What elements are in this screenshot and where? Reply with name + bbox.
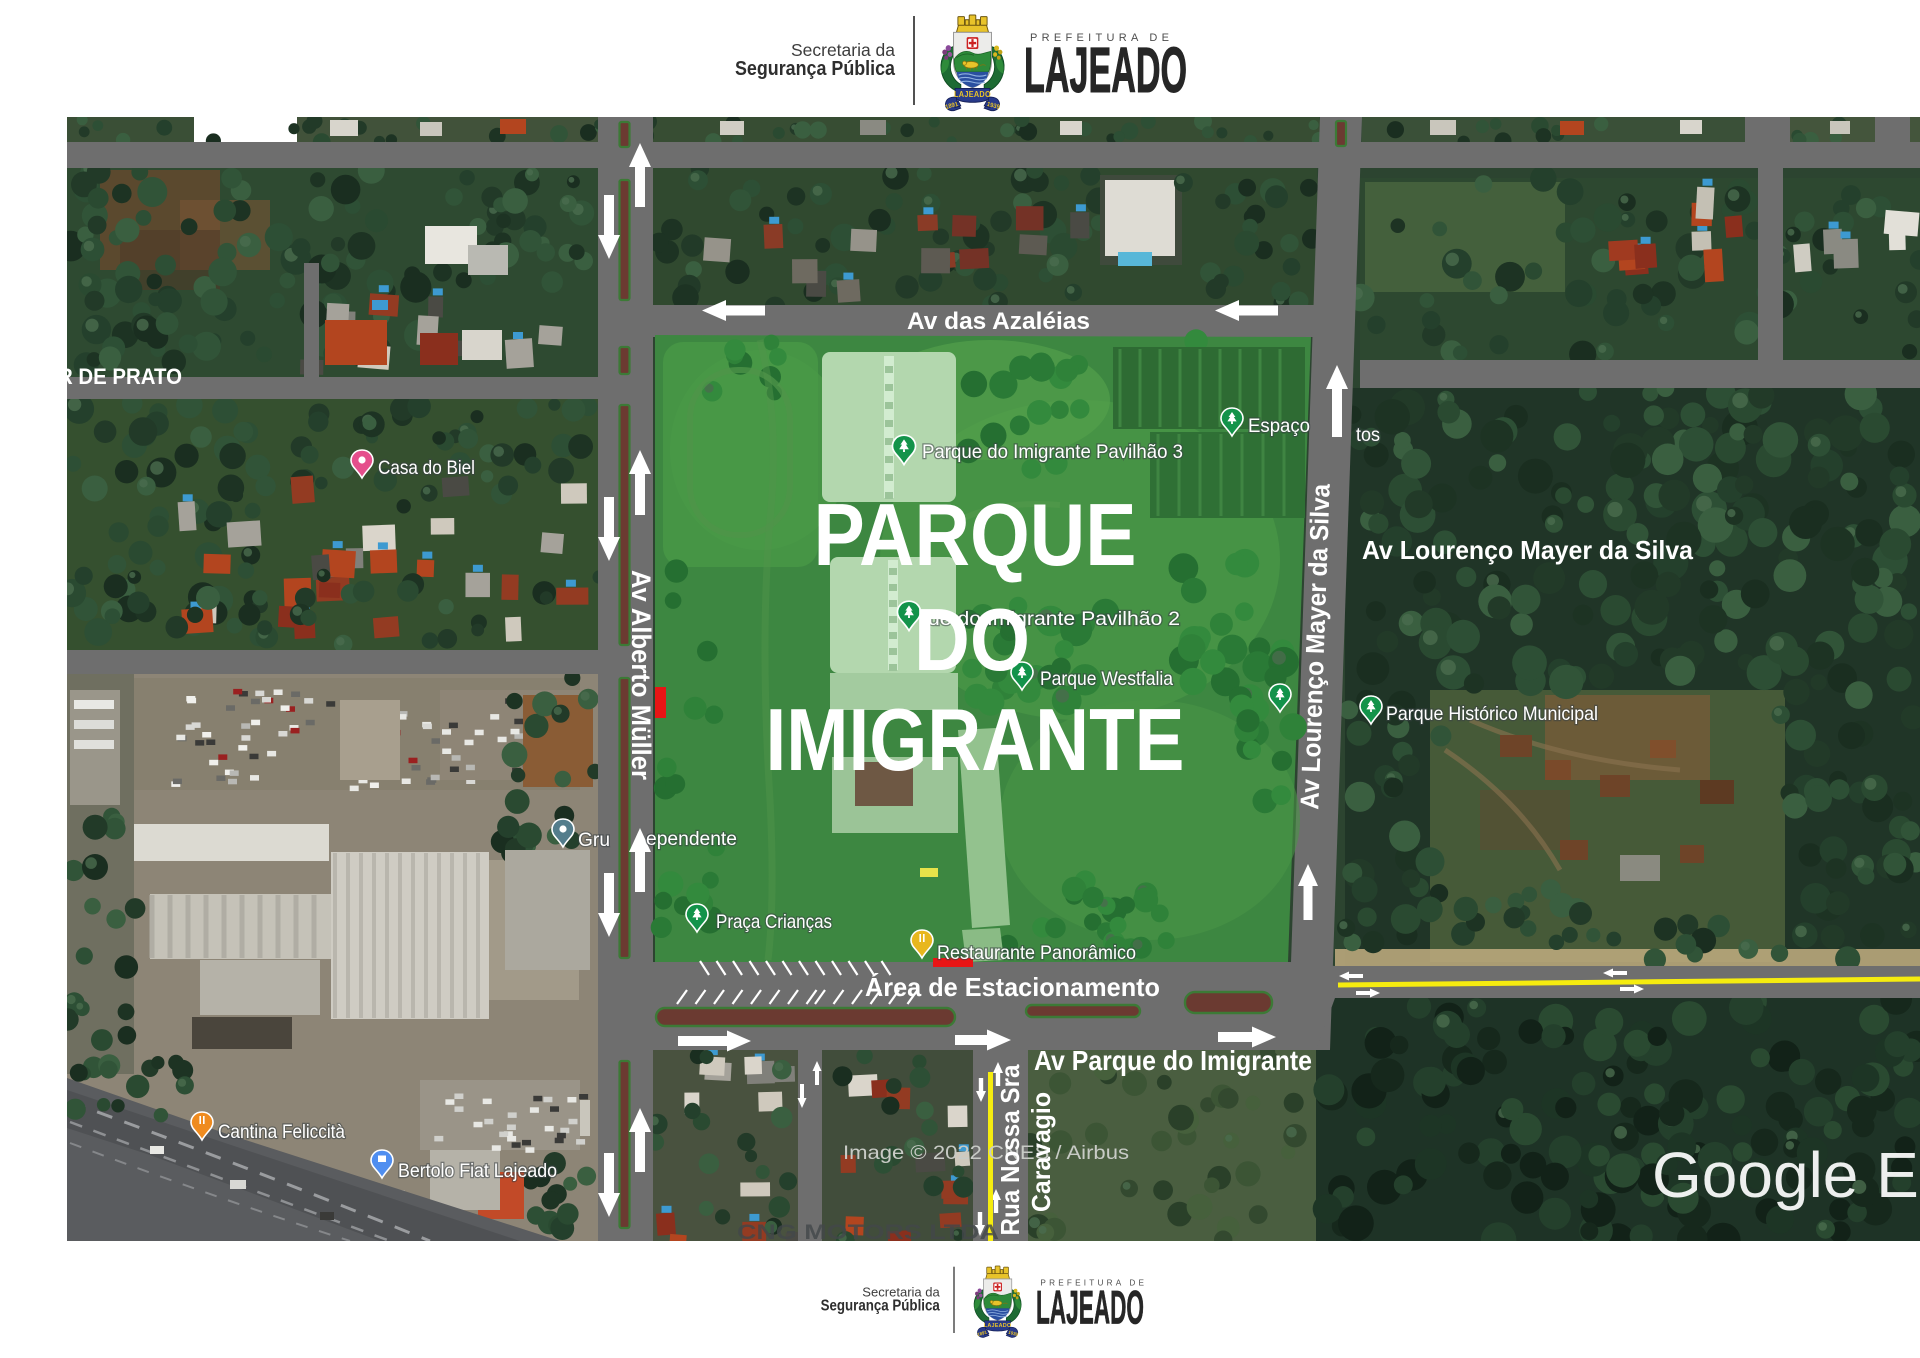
svg-text:PARQUE: PARQUE: [814, 485, 1137, 584]
svg-text:DO: DO: [914, 590, 1030, 689]
svg-text:IMIGRANTE: IMIGRANTE: [766, 690, 1185, 789]
svg-text:Parque Histórico Municipal: Parque Histórico Municipal: [1386, 703, 1598, 725]
svg-text:Rua Nossa Sra: Rua Nossa Sra: [995, 1064, 1025, 1235]
svg-text:CNG MOTORS LTDA: CNG MOTORS LTDA: [737, 1221, 999, 1244]
svg-text:Gru: Gru: [578, 829, 610, 851]
svg-text:Bertolo Fiat Lajeado: Bertolo Fiat Lajeado: [398, 1160, 557, 1182]
svg-text:Av Lourenço Mayer da Silva: Av Lourenço Mayer da Silva: [1362, 535, 1694, 565]
svg-text:Área de Estacionamento: Área de Estacionamento: [865, 972, 1160, 1002]
svg-text:Av Alberto Müller: Av Alberto Müller: [626, 570, 656, 780]
svg-text:Segurança Pública: Segurança Pública: [735, 57, 896, 80]
svg-text:LAJEADO: LAJEADO: [1036, 1281, 1144, 1334]
svg-text:Parque do Imigrante Pavilhão 3: Parque do Imigrante Pavilhão 3: [922, 441, 1183, 463]
svg-text:Restaurante Panorâmico: Restaurante Panorâmico: [937, 942, 1136, 964]
svg-text:Praça Crianças: Praça Crianças: [716, 911, 832, 933]
svg-text:Casa do Biel: Casa do Biel: [378, 457, 475, 479]
svg-text:Parque Westfalia: Parque Westfalia: [1040, 668, 1173, 690]
svg-text:Av Parque do Imigrante: Av Parque do Imigrante: [1034, 1045, 1312, 1076]
svg-text:Google Ea: Google Ea: [1652, 1139, 1920, 1211]
svg-text:Caravagio: Caravagio: [1026, 1092, 1056, 1212]
svg-text:Av das Azaléias: Av das Azaléias: [907, 308, 1090, 335]
svg-text:Segurança Pública: Segurança Pública: [821, 1298, 941, 1315]
svg-text:tos: tos: [1356, 424, 1380, 446]
svg-text:R DE PRATO: R DE PRATO: [58, 364, 182, 389]
svg-text:Cantina Feliccità: Cantina Feliccità: [218, 1121, 345, 1143]
svg-text:ependente: ependente: [646, 828, 737, 850]
svg-text:Image © 2022 CNES / Airbus: Image © 2022 CNES / Airbus: [843, 1142, 1129, 1164]
svg-text:LAJEADO: LAJEADO: [1024, 34, 1187, 106]
svg-text:Espaço: Espaço: [1248, 415, 1310, 437]
